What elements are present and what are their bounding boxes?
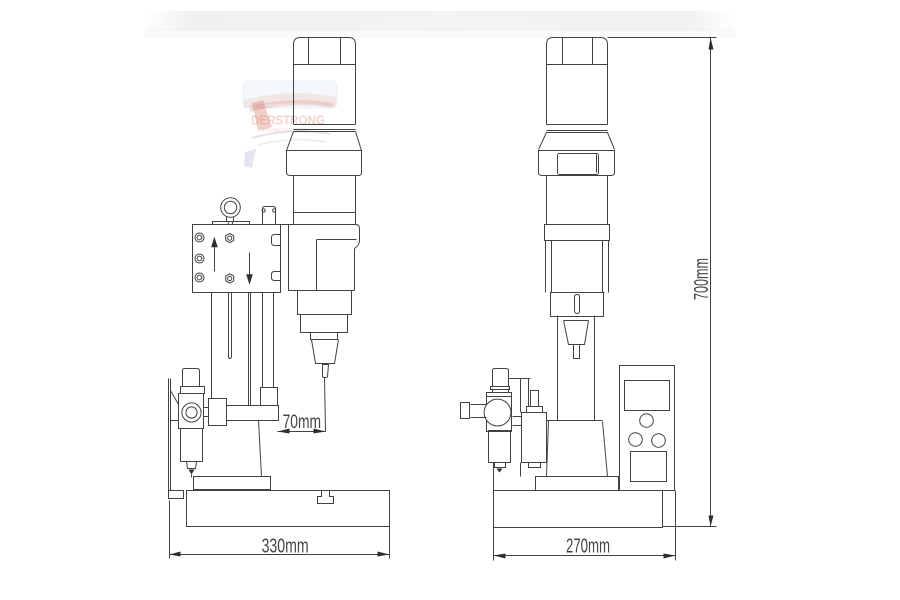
svg-text:700mm: 700mm [691, 258, 713, 300]
svg-text:330mm: 330mm [262, 535, 309, 557]
svg-text:DERSTRONG: DERSTRONG [251, 113, 325, 128]
svg-text:70mm: 70mm [283, 411, 322, 433]
svg-text:270mm: 270mm [566, 536, 610, 558]
